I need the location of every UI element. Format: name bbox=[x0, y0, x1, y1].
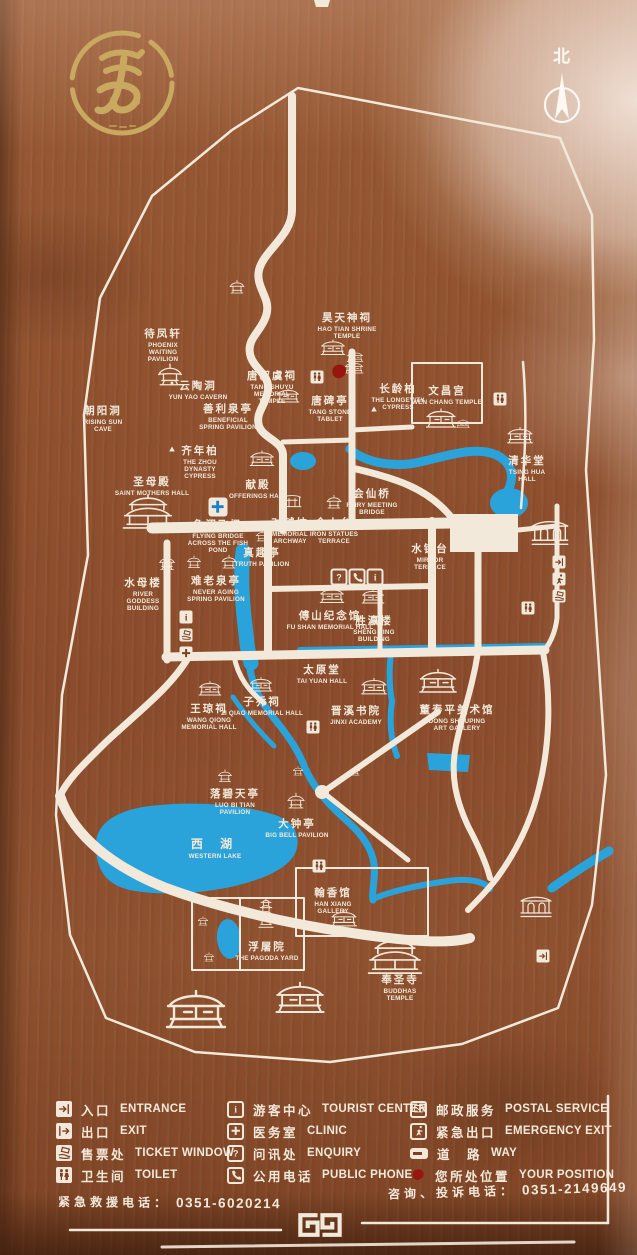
place-name-zh: 善利泉亭 bbox=[195, 401, 261, 416]
legend-label-en: PUBLIC PHONE bbox=[322, 1169, 413, 1181]
entrance-icon bbox=[56, 1101, 72, 1117]
pavilion-building-icon bbox=[218, 769, 233, 783]
place-the-pagoda-yard: 浮屠院THE PAGODA YARD bbox=[230, 939, 304, 962]
pavilion-building-icon bbox=[159, 555, 176, 571]
svg-text:i: i bbox=[185, 612, 188, 622]
place-name-en: TRUTH PAVILION bbox=[232, 561, 292, 568]
legend-label-en: POSTAL SERVICE bbox=[505, 1103, 608, 1115]
phone-icon bbox=[349, 569, 366, 586]
place-name-en: FAIRY MEETING BRIDGE bbox=[346, 502, 398, 516]
place-name-zh: 西 湖 bbox=[185, 835, 245, 852]
clinic-icon bbox=[209, 498, 228, 517]
place-name-zh: 鱼沼飞梁 bbox=[181, 517, 255, 532]
place-name-zh: 太原堂 bbox=[292, 662, 352, 677]
enquiry-icon: ? bbox=[227, 1145, 244, 1162]
hall-building-icon bbox=[198, 681, 222, 698]
pavilion-building-icon bbox=[221, 555, 237, 570]
legend-item-emergency-exit: 紧急出口EMERGENCY EXIT bbox=[410, 1120, 614, 1142]
legend-label-en: ENQUIRY bbox=[307, 1147, 361, 1159]
pavilion-building-icon bbox=[204, 952, 215, 962]
toilet-icon bbox=[494, 393, 507, 406]
place-name-en: IRON STATUES TERRACE bbox=[306, 531, 362, 545]
place-name-en: ZI QIAO MEMORIAL HALL bbox=[219, 710, 305, 717]
toilet-icon bbox=[313, 860, 326, 873]
pavilion-building-icon bbox=[198, 916, 209, 926]
place-name-zh: 水母楼 bbox=[120, 575, 166, 590]
arch-building-icon bbox=[282, 494, 302, 509]
svg-text:?: ? bbox=[233, 1149, 238, 1159]
dot-icon bbox=[169, 380, 176, 387]
postal-icon bbox=[410, 1101, 427, 1118]
legend-label-en: TICKET WINDOW bbox=[135, 1147, 234, 1159]
place-name-zh: 胜瀛楼 bbox=[352, 613, 396, 628]
pagoda-building-icon bbox=[257, 897, 275, 929]
pavilion-building-icon bbox=[287, 793, 306, 810]
legend-item-entrance: 入口ENTRANCE bbox=[56, 1098, 234, 1120]
place-name-en: BIG BELL PAVILION bbox=[265, 832, 329, 839]
place-name-en: RISING SUN CAVE bbox=[81, 419, 125, 433]
place-name-en: NEVER AGING SPRING PAVILION bbox=[186, 589, 246, 603]
legend-label-zh: 售票处 bbox=[81, 1144, 126, 1163]
place-name-zh: 子乔祠 bbox=[219, 694, 305, 709]
place-name-zh: 水镜台 bbox=[400, 541, 460, 556]
meander-ornament bbox=[293, 1206, 347, 1244]
ticket-icon bbox=[553, 590, 566, 603]
legend-label-zh: 医务室 bbox=[253, 1122, 298, 1141]
place-phoenix-waiting-pavilion: 待凤轩PHOENIX WAITING PAVILION bbox=[135, 326, 191, 363]
place-name-en: PHOENIX WAITING PAVILION bbox=[135, 342, 191, 363]
triangle-icon bbox=[370, 405, 379, 414]
place-name-zh: 大钟亭 bbox=[265, 816, 329, 831]
place-name-en: WESTERN LAKE bbox=[185, 853, 245, 860]
place-western-lake: 西 湖WESTERN LAKE bbox=[185, 835, 245, 860]
complaint-phone-label: 咨询、投诉电话： bbox=[388, 1184, 516, 1202]
hall-building-icon bbox=[330, 910, 358, 929]
hall-building-icon bbox=[249, 677, 273, 694]
legend-label-zh: 卫生间 bbox=[81, 1166, 126, 1185]
emergency-phone: 紧急救援电话：0351-6020214 bbox=[58, 1193, 281, 1213]
pavilion-building-icon bbox=[229, 280, 245, 295]
place-name-zh: 朝阳洞 bbox=[81, 403, 125, 418]
bighall-building-icon bbox=[366, 936, 424, 976]
place-buddhas-temple: 奉圣寺BUDDHAS TEMPLE bbox=[370, 972, 430, 1002]
gate-building-icon bbox=[519, 893, 553, 919]
place-big-bell-pavilion: 大钟亭BIG BELL PAVILION bbox=[265, 816, 329, 839]
hall-building-icon bbox=[506, 427, 534, 446]
place-name-zh: 文昌宫 bbox=[402, 383, 492, 398]
position-icon bbox=[330, 361, 348, 383]
legend-label-zh: 紧急出口 bbox=[436, 1122, 496, 1141]
legend-item-tourist-center: i游客中心TOURIST CENTER bbox=[227, 1098, 427, 1120]
place-name-zh: 真趣亭 bbox=[232, 545, 292, 560]
ticket-icon bbox=[56, 1145, 72, 1161]
place-name-en: BUDDHAS TEMPLE bbox=[370, 988, 430, 1002]
legend-item-toilet: 卫生间TOILET bbox=[56, 1164, 234, 1186]
place-never-aging-spring-pavilion: 难老泉亭NEVER AGING SPRING PAVILION bbox=[186, 573, 246, 603]
place-name-en: DONG SHOUPING ART GALLERY bbox=[424, 718, 490, 732]
hall-building-icon bbox=[456, 419, 471, 429]
place-name-en: LUO BI TIAN PAVILION bbox=[202, 802, 268, 816]
legend-item-enquiry: ?问讯处ENQUIRY bbox=[227, 1142, 427, 1164]
entrance-icon bbox=[553, 556, 566, 569]
svg-text:i: i bbox=[234, 1106, 237, 1115]
place-tsing-hua-hall: 清华堂TSING HUA HALL bbox=[505, 453, 549, 483]
hall-building-icon bbox=[319, 587, 345, 605]
exit-icon bbox=[56, 1123, 72, 1139]
legend-label-zh: 邮政服务 bbox=[436, 1100, 496, 1119]
map-label-layer: 待凤轩PHOENIX WAITING PAVILION昊天神祠HAO TIAN … bbox=[0, 0, 637, 1255]
gate-building-icon bbox=[530, 517, 570, 548]
emergency-phone-label: 紧急救援电话： bbox=[58, 1195, 170, 1210]
place-name-en: TANG STONE TABLET bbox=[308, 409, 352, 423]
legend-item-exit: 出口EXIT bbox=[56, 1120, 234, 1142]
ticket-icon bbox=[180, 629, 193, 642]
legend-item-way: 道 路WAY bbox=[410, 1142, 614, 1164]
toilet-icon bbox=[311, 371, 324, 384]
place-name-en: BENEFICIAL SPRING PAVILION bbox=[195, 417, 261, 431]
place-name-zh: 金人台 bbox=[306, 515, 362, 530]
place-river-goddess-building: 水母楼RIVER GODDESS BUILDING bbox=[120, 575, 166, 612]
place-name-en: JINXI ACADEMY bbox=[326, 719, 386, 726]
position-icon bbox=[410, 1167, 426, 1183]
place-beneficial-spring-pavilion: 善利泉亭BENEFICIAL SPRING PAVILION bbox=[195, 401, 261, 431]
hall-building-icon bbox=[320, 339, 346, 357]
place-name-zh: 昊天神祠 bbox=[317, 310, 377, 325]
place-name-en: WEN CHANG TEMPLE bbox=[402, 399, 492, 406]
svg-text:i: i bbox=[374, 572, 377, 582]
hall-building-icon bbox=[276, 388, 300, 405]
place-name-en: WANG QIONG MEMORIAL HALL bbox=[181, 717, 237, 731]
legend-column-3: 邮政服务POSTAL SERVICE紧急出口EMERGENCY EXIT道 路W… bbox=[410, 1098, 614, 1186]
hall-building-icon bbox=[361, 589, 385, 606]
hall-building-icon bbox=[425, 408, 457, 430]
legend-column-2: i游客中心TOURIST CENTER医务室CLINIC?问讯处ENQUIRY公… bbox=[227, 1098, 427, 1186]
place-name-zh: 待凤轩 bbox=[135, 326, 191, 341]
triangle-icon bbox=[168, 445, 177, 454]
place-name-en: SHENG YING BUILDING bbox=[352, 629, 396, 643]
place-sheng-ying-building: 胜瀛楼SHENG YING BUILDING bbox=[352, 613, 396, 643]
legend-label-zh: 问讯处 bbox=[253, 1144, 298, 1163]
pavilion-building-icon bbox=[293, 766, 304, 776]
legend-label-zh: 道 路 bbox=[437, 1144, 482, 1163]
place-name-en: THE PAGODA YARD bbox=[230, 955, 304, 962]
hall-building-icon bbox=[249, 450, 275, 468]
place-name-zh: 落碧天亭 bbox=[202, 786, 268, 801]
pavilion-building-icon bbox=[350, 766, 361, 776]
emergency-icon bbox=[410, 1123, 427, 1140]
legend-label-en: WAY bbox=[491, 1147, 517, 1159]
place-name-zh: 唐叔虞祠 bbox=[243, 368, 301, 383]
legend-label-en: ENTRANCE bbox=[120, 1103, 186, 1115]
place-name-zh: 圣母殿 bbox=[109, 474, 195, 489]
park-map-sign: 北 待凤轩PHOENIX WAITING PAVILION昊天神祠HAO TIA… bbox=[0, 0, 637, 1255]
legend-label-zh: 游客中心 bbox=[253, 1100, 313, 1119]
place-name-en: YUN YAO CAVERN bbox=[163, 394, 233, 401]
legend-label-en: TOILET bbox=[135, 1169, 177, 1181]
emergency-icon bbox=[553, 573, 566, 586]
place-zi-qiao-memorial-hall: 子乔祠ZI QIAO MEMORIAL HALL bbox=[219, 694, 305, 717]
legend-column-1: 入口ENTRANCE出口EXIT售票处TICKET WINDOW卫生间TOILE… bbox=[56, 1098, 234, 1186]
clinic-icon bbox=[180, 647, 193, 660]
legend-label-en: EMERGENCY EXIT bbox=[505, 1125, 612, 1137]
place-mirror-terrace: 水镜台MIRROR TERRACE bbox=[400, 541, 460, 571]
place-name-en: TAI YUAN HALL bbox=[292, 678, 352, 685]
entrance-icon bbox=[537, 950, 550, 963]
place-name-zh: 董寿平美术馆 bbox=[420, 702, 495, 717]
place-name-en: HAO TIAN SHRINE TEMPLE bbox=[317, 326, 377, 340]
pavilion-building-icon bbox=[187, 555, 202, 569]
legend-item-ticket-window: 售票处TICKET WINDOW bbox=[56, 1142, 234, 1164]
hall-building-icon bbox=[274, 981, 326, 1017]
place-name-zh: 唐碑亭 bbox=[308, 393, 352, 408]
toilet-icon bbox=[56, 1167, 72, 1183]
place-dong-shouping-art-gallery: 董寿平美术馆DONG SHOUPING ART GALLERY bbox=[420, 702, 495, 732]
legend-label-zh: 公用电话 bbox=[253, 1166, 313, 1185]
hall-building-icon bbox=[164, 989, 228, 1033]
place-truth-pavilion: 真趣亭TRUTH PAVILION bbox=[232, 545, 292, 568]
clinic-icon bbox=[227, 1123, 244, 1140]
place-name-en: MIRROR TERRACE bbox=[400, 557, 460, 571]
info-icon: i bbox=[367, 569, 384, 586]
place-wen-chang-temple: 文昌宫WEN CHANG TEMPLE bbox=[402, 383, 492, 406]
emergency-phone-number: 0351-6020214 bbox=[176, 1195, 281, 1211]
place-fairy-meeting-bridge: 会仙桥FAIRY MEETING BRIDGE bbox=[346, 486, 398, 516]
hall-building-icon bbox=[418, 668, 458, 696]
way-icon bbox=[410, 1148, 428, 1159]
place-hao-tian-shrine-temple: 昊天神祠HAO TIAN SHRINE TEMPLE bbox=[317, 310, 377, 340]
pavilion-building-icon bbox=[326, 495, 342, 510]
toilet-icon bbox=[522, 602, 535, 615]
complaint-phone-number: 0351-2149649 bbox=[522, 1180, 627, 1198]
enquiry-icon: ? bbox=[331, 569, 348, 586]
place-iron-statues-terrace: 金人台IRON STATUES TERRACE bbox=[306, 515, 362, 545]
bighall-building-icon bbox=[121, 494, 175, 531]
info-icon: i bbox=[227, 1101, 244, 1118]
place-name-zh: 齐年柏 bbox=[168, 443, 232, 458]
legend-item-public-phone: 公用电话PUBLIC PHONE bbox=[227, 1164, 427, 1186]
legend-item-postal-service: 邮政服务POSTAL SERVICE bbox=[410, 1098, 614, 1120]
place-name-zh: 会仙桥 bbox=[346, 486, 398, 501]
place-tang-stone-tablet: 唐碑亭TANG STONE TABLET bbox=[308, 393, 352, 423]
svg-text:?: ? bbox=[336, 572, 341, 582]
legend-label-en: EXIT bbox=[120, 1125, 147, 1137]
place-name-en: TSING HUA HALL bbox=[505, 469, 549, 483]
pavilion-building-icon bbox=[256, 530, 269, 542]
place-name-zh: 浮屠院 bbox=[230, 939, 304, 954]
place-name-zh: 献殿 bbox=[223, 477, 293, 492]
toilet-icon bbox=[307, 721, 320, 734]
place-tai-yuan-hall: 太原堂TAI YUAN HALL bbox=[292, 662, 352, 685]
place-name-zh: 难老泉亭 bbox=[186, 573, 246, 588]
place-name-en: RIVER GODDESS BUILDING bbox=[120, 591, 166, 612]
legend-item-clinic: 医务室CLINIC bbox=[227, 1120, 427, 1142]
phone-icon bbox=[227, 1167, 244, 1184]
place-rising-sun-cave: 朝阳洞RISING SUN CAVE bbox=[81, 403, 125, 433]
place-luo-bi-tian-pavilion: 落碧天亭LUO BI TIAN PAVILION bbox=[202, 786, 268, 816]
legend-label-zh: 入口 bbox=[81, 1100, 111, 1119]
place-jinxi-academy: 晋溪书院JINXI ACADEMY bbox=[326, 703, 386, 726]
place-name-zh: 清华堂 bbox=[505, 453, 549, 468]
legend-label-zh: 出口 bbox=[81, 1122, 111, 1141]
legend-label-en: CLINIC bbox=[307, 1125, 347, 1137]
hall-building-icon bbox=[360, 678, 388, 697]
place-name-zh: 翰香馆 bbox=[313, 885, 353, 900]
place-name-zh: 晋溪书院 bbox=[326, 703, 386, 718]
info-icon: i bbox=[180, 611, 193, 624]
